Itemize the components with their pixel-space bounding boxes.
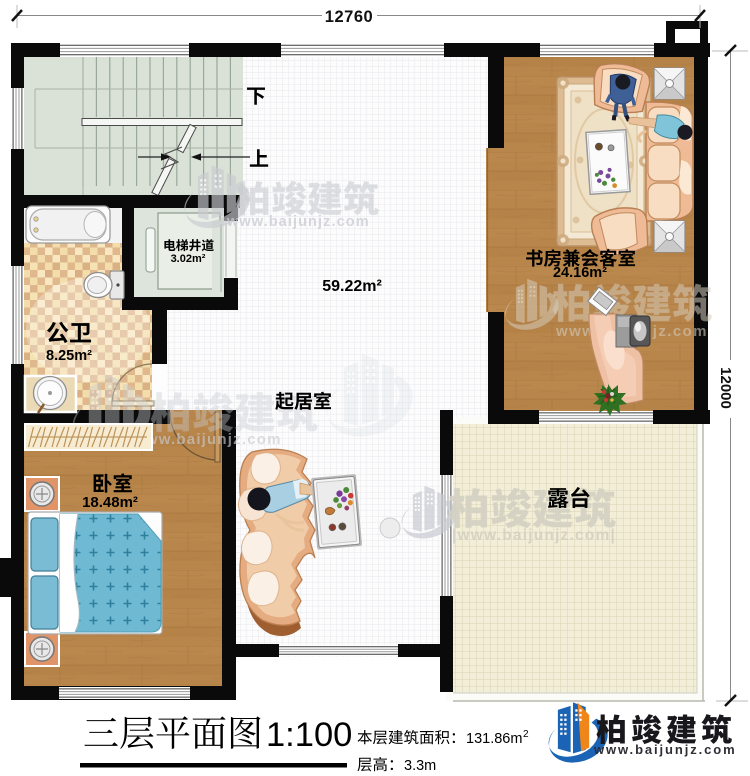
svg-text:3.3m: 3.3m: [404, 758, 436, 774]
svg-text:www.baijunjz.com: www.baijunjz.com: [226, 214, 370, 230]
svg-text:3.02m²: 3.02m²: [171, 253, 206, 265]
svg-text:59.22m²: 59.22m²: [322, 278, 382, 295]
svg-text:2: 2: [523, 729, 529, 740]
svg-text:www.baijunjz.com: www.baijunjz.com: [132, 431, 282, 448]
svg-text:12000: 12000: [717, 367, 734, 409]
svg-text:18.48m²: 18.48m²: [82, 494, 138, 511]
svg-text:1:100: 1:100: [266, 716, 352, 754]
svg-text:www.baijunjz.com: www.baijunjz.com: [593, 742, 737, 757]
svg-text:24.16m²: 24.16m²: [553, 265, 607, 281]
svg-text:8.25m²: 8.25m²: [46, 348, 92, 364]
svg-text:131.86m: 131.86m: [466, 731, 522, 747]
svg-text:12760: 12760: [325, 8, 373, 26]
svg-text:|www.baijunjz.com|: |www.baijunjz.com|: [452, 527, 616, 544]
